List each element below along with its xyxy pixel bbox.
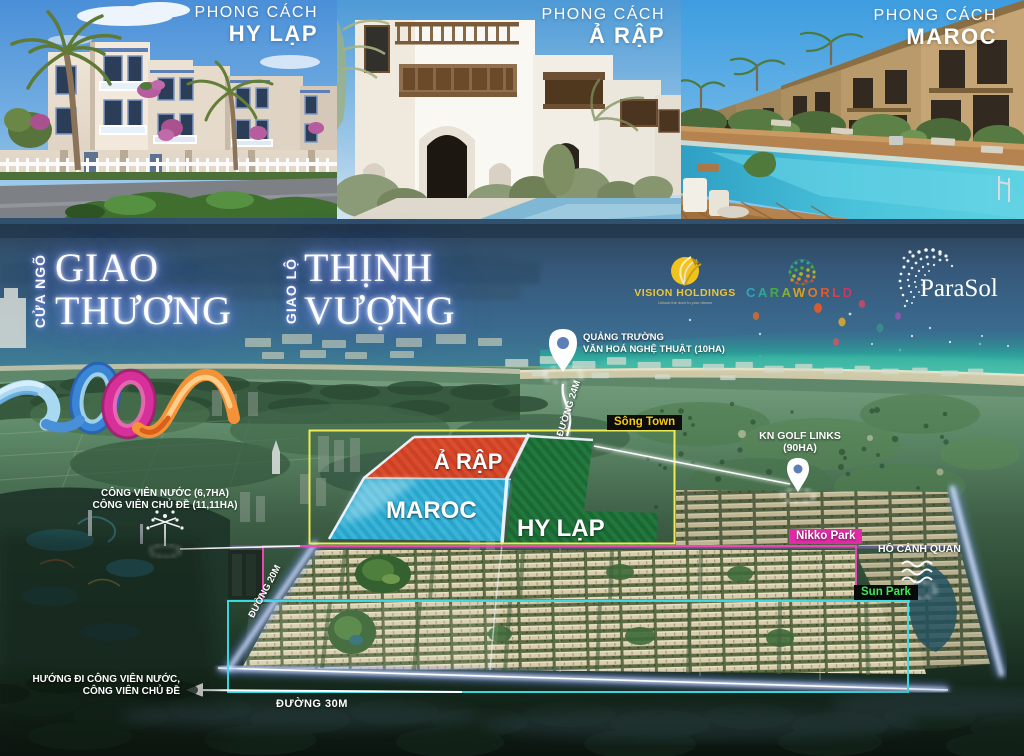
svg-text:CARAWORLD: CARAWORLD bbox=[746, 285, 854, 300]
svg-text:Unlock the door to your dream: Unlock the door to your dream bbox=[658, 300, 712, 305]
svg-text:ParaSol: ParaSol bbox=[920, 275, 998, 302]
svg-text:VISION HOLDINGS: VISION HOLDINGS bbox=[634, 287, 735, 299]
